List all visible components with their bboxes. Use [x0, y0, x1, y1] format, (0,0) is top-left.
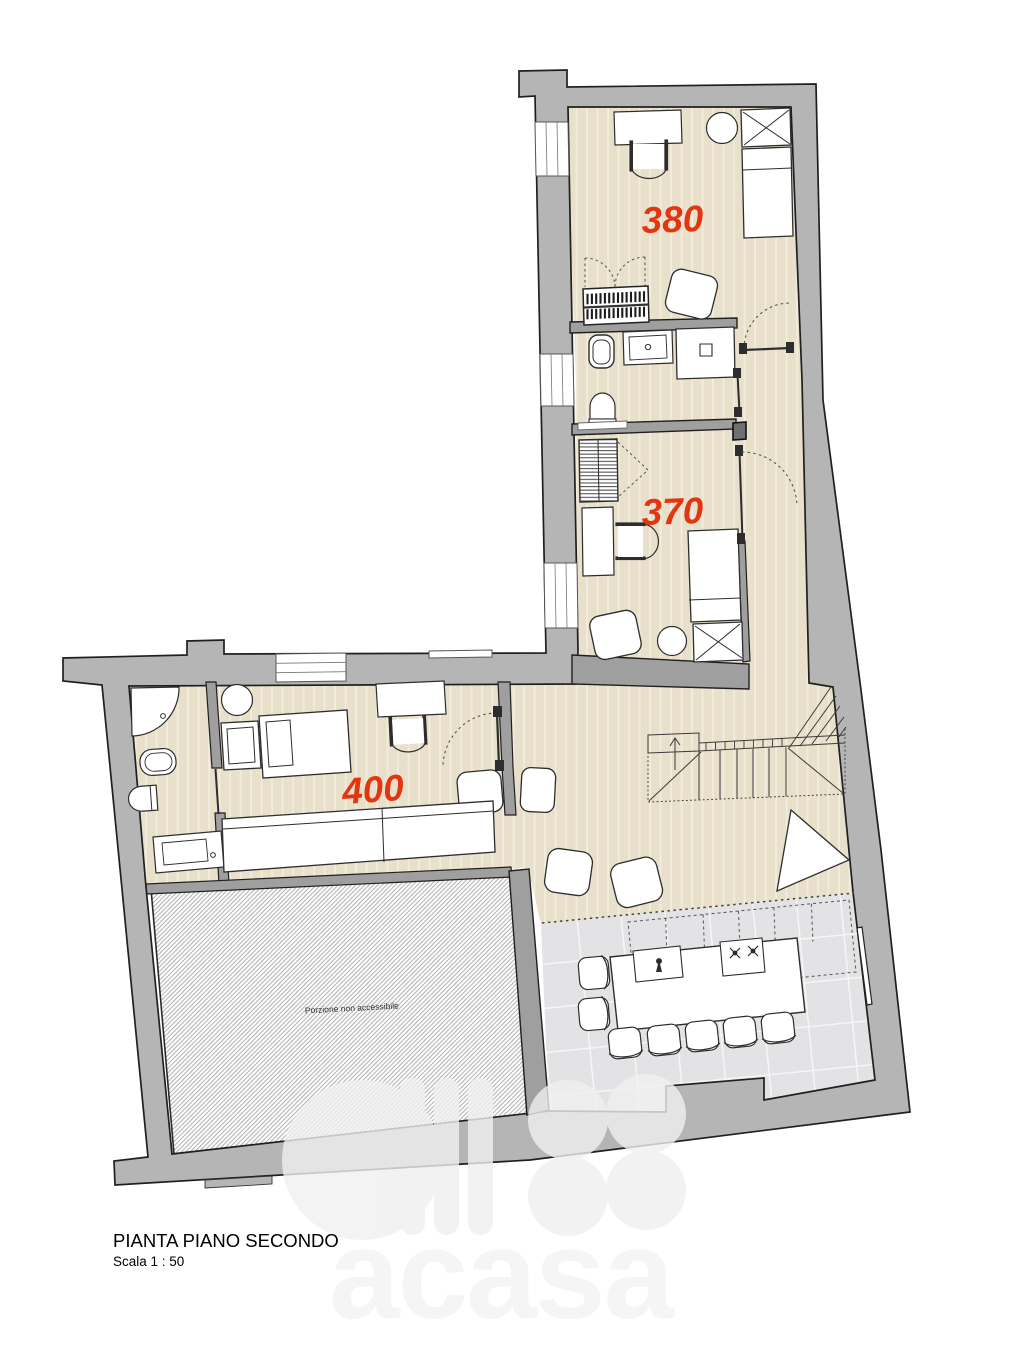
svg-text:Scala 1 : 50: Scala 1 : 50 — [113, 1254, 184, 1269]
svg-text:380: 380 — [641, 198, 705, 241]
svg-text:PIANTA PIANO SECONDO: PIANTA PIANO SECONDO — [113, 1230, 339, 1251]
svg-text:acasa: acasa — [329, 1203, 676, 1345]
svg-text:370: 370 — [641, 490, 705, 533]
svg-text:400: 400 — [340, 767, 406, 812]
